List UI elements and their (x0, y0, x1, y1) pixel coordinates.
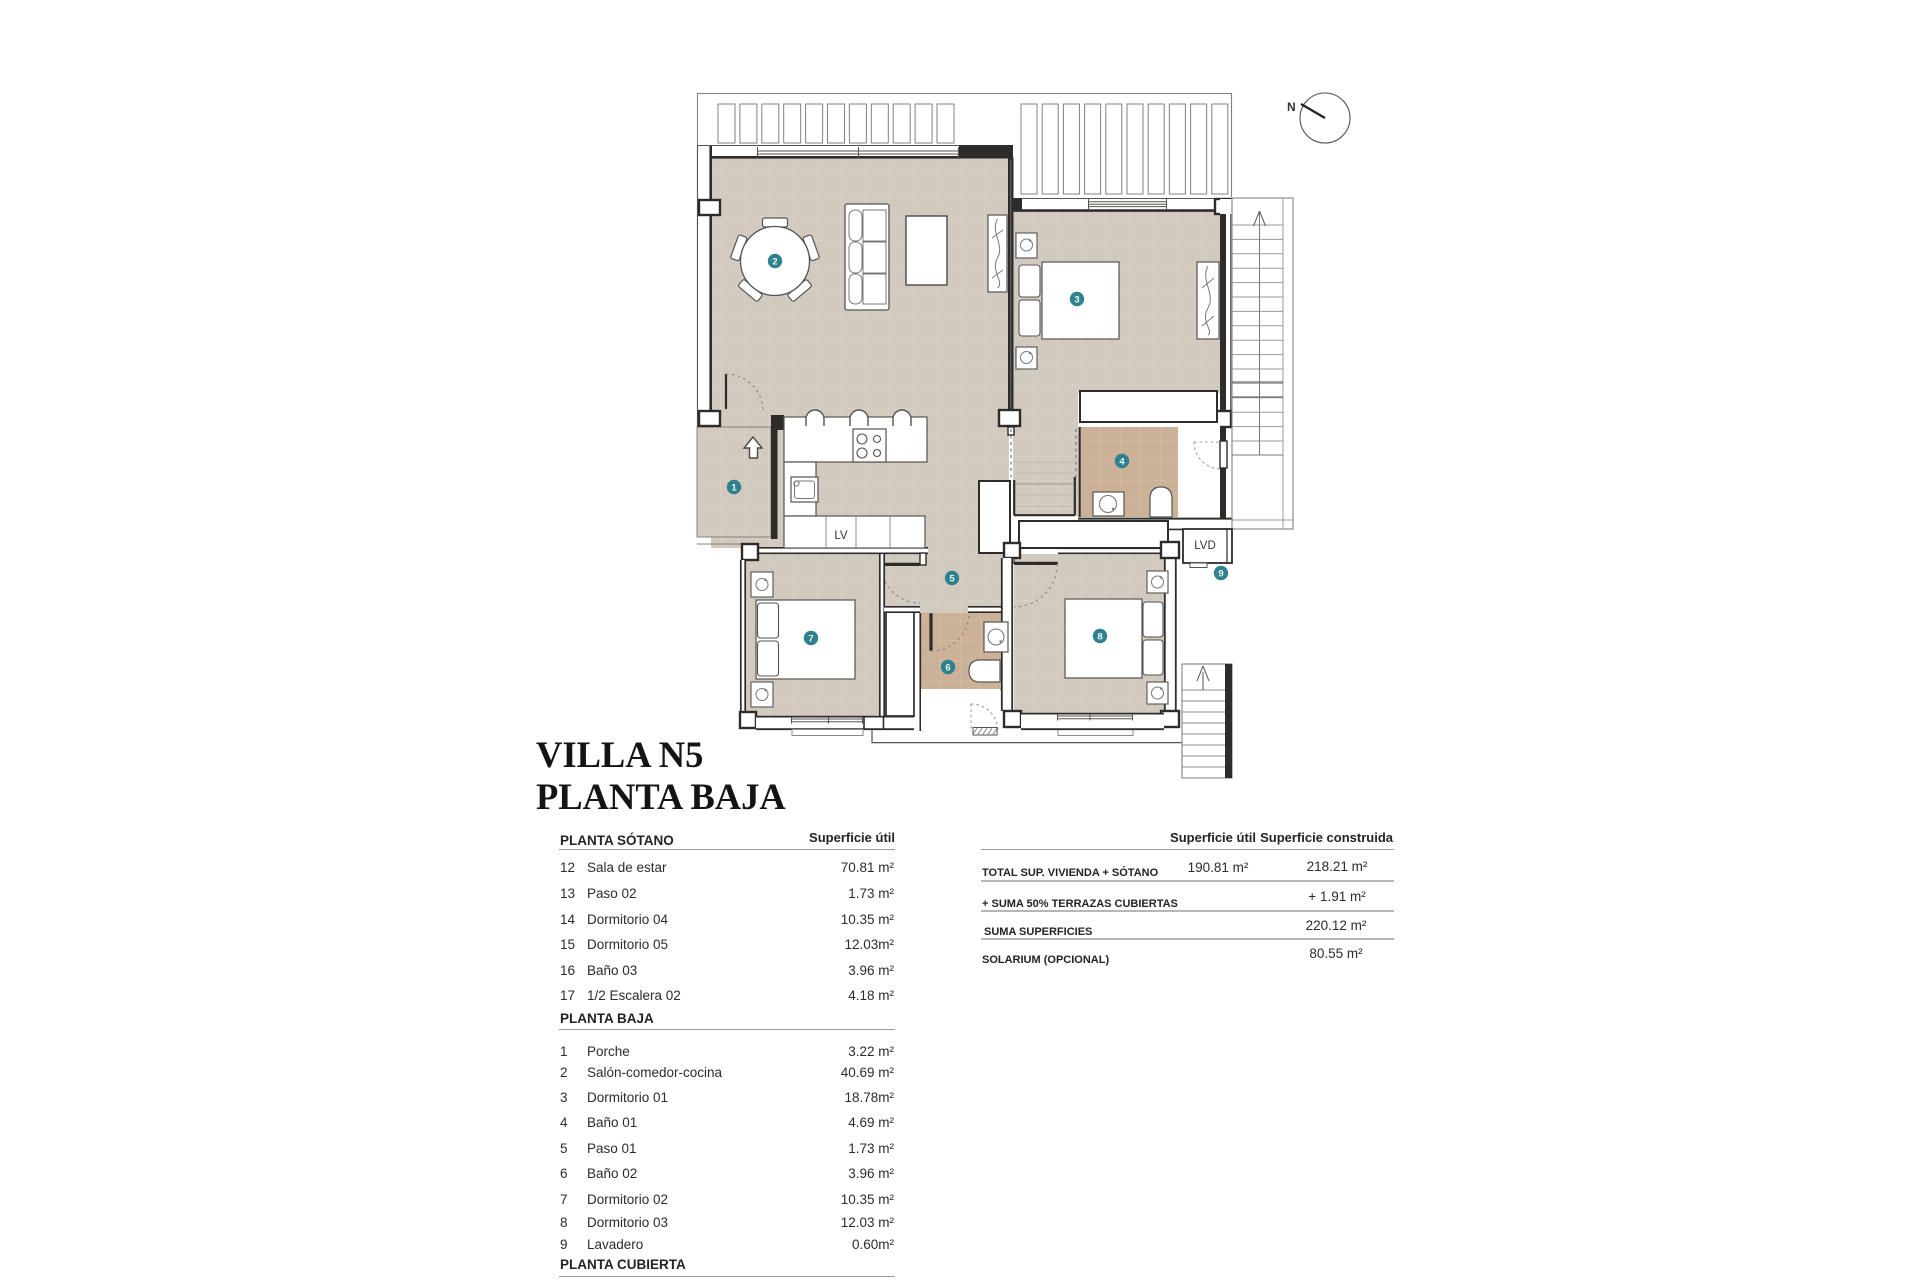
svg-text:2: 2 (772, 256, 777, 267)
svg-text:4.18 m²: 4.18 m² (848, 988, 894, 1003)
svg-text:1/2 Escalera 02: 1/2 Escalera 02 (587, 988, 681, 1003)
svg-text:LV: LV (834, 530, 848, 542)
svg-text:1: 1 (731, 482, 737, 493)
svg-text:8: 8 (560, 1215, 568, 1230)
svg-text:3: 3 (1074, 294, 1079, 305)
svg-text:220.12 m²: 220.12 m² (1306, 918, 1367, 933)
svg-text:Paso 02: Paso 02 (587, 886, 637, 901)
svg-text:TOTAL SUP. VIVIENDA + SÓTANO: TOTAL SUP. VIVIENDA + SÓTANO (982, 866, 1159, 879)
svg-text:PLANTA CUBIERTA: PLANTA CUBIERTA (560, 1257, 686, 1272)
svg-text:1.73 m²: 1.73 m² (848, 1141, 894, 1156)
svg-text:+ SUMA 50% TERRAZAS CUBIERTAS: + SUMA 50% TERRAZAS CUBIERTAS (982, 898, 1178, 910)
svg-text:Dormitorio 01: Dormitorio 01 (587, 1090, 668, 1105)
svg-text:Superficie construida: Superficie construida (1260, 830, 1394, 845)
svg-text:9: 9 (560, 1237, 568, 1252)
svg-text:7: 7 (560, 1192, 568, 1207)
svg-text:18.78m²: 18.78m² (844, 1090, 894, 1105)
svg-text:Paso 01: Paso 01 (587, 1141, 637, 1156)
svg-text:10.35 m²: 10.35 m² (841, 1192, 895, 1207)
svg-text:Salón-comedor-cocina: Salón-comedor-cocina (587, 1065, 723, 1080)
svg-text:12.03 m²: 12.03 m² (841, 1215, 895, 1230)
svg-text:Dormitorio 05: Dormitorio 05 (587, 937, 668, 952)
svg-text:16: 16 (560, 963, 575, 978)
svg-text:Baño 03: Baño 03 (587, 963, 637, 978)
svg-text:13: 13 (560, 886, 575, 901)
svg-text:Baño 01: Baño 01 (587, 1115, 637, 1130)
svg-text:40.69 m²: 40.69 m² (841, 1065, 895, 1080)
svg-text:3: 3 (560, 1090, 568, 1105)
svg-text:80.55 m²: 80.55 m² (1309, 946, 1363, 961)
svg-text:4: 4 (560, 1115, 568, 1130)
svg-text:4: 4 (1119, 456, 1125, 467)
svg-text:Baño 02: Baño 02 (587, 1166, 637, 1181)
svg-text:PLANTA BAJA: PLANTA BAJA (536, 776, 786, 817)
svg-text:14: 14 (560, 912, 576, 927)
svg-text:6: 6 (560, 1166, 568, 1181)
svg-text:2: 2 (560, 1065, 568, 1080)
svg-text:+ 1.91 m²: + 1.91 m² (1308, 889, 1366, 904)
svg-text:9: 9 (1218, 568, 1223, 579)
svg-text:0.60m²: 0.60m² (852, 1237, 895, 1252)
svg-text:Lavadero: Lavadero (587, 1237, 643, 1252)
svg-text:PLANTA SÓTANO: PLANTA SÓTANO (560, 833, 674, 848)
svg-text:3.96 m²: 3.96 m² (848, 963, 894, 978)
svg-text:1: 1 (560, 1044, 568, 1059)
svg-text:15: 15 (560, 937, 575, 952)
svg-text:LVD: LVD (1194, 540, 1216, 552)
svg-text:3.96 m²: 3.96 m² (848, 1166, 894, 1181)
svg-text:12: 12 (560, 860, 575, 875)
svg-text:8: 8 (1097, 631, 1102, 642)
svg-text:Superficie útil: Superficie útil (809, 830, 895, 845)
svg-text:190.81 m²: 190.81 m² (1188, 860, 1249, 875)
svg-text:Sala de estar: Sala de estar (587, 860, 667, 875)
svg-text:12.03m²: 12.03m² (844, 937, 894, 952)
svg-text:PLANTA BAJA: PLANTA BAJA (560, 1011, 654, 1026)
svg-text:10.35 m²: 10.35 m² (841, 912, 895, 927)
svg-text:Superficie útil: Superficie útil (1170, 830, 1256, 845)
svg-text:7: 7 (808, 633, 813, 644)
svg-text:218.21 m²: 218.21 m² (1307, 859, 1368, 874)
svg-text:70.81 m²: 70.81 m² (841, 860, 895, 875)
svg-text:3.22 m²: 3.22 m² (848, 1044, 894, 1059)
svg-text:4.69 m²: 4.69 m² (848, 1115, 894, 1130)
svg-text:Dormitorio 04: Dormitorio 04 (587, 912, 669, 927)
svg-text:Dormitorio 03: Dormitorio 03 (587, 1215, 668, 1230)
svg-text:1.73 m²: 1.73 m² (848, 886, 894, 901)
svg-text:N: N (1287, 100, 1296, 114)
svg-text:SUMA SUPERFICIES: SUMA SUPERFICIES (984, 926, 1092, 938)
svg-text:VILLA N5: VILLA N5 (536, 734, 703, 775)
svg-text:Dormitorio 02: Dormitorio 02 (587, 1192, 668, 1207)
svg-text:SOLARIUM (OPCIONAL): SOLARIUM (OPCIONAL) (982, 954, 1109, 966)
svg-text:6: 6 (945, 662, 950, 673)
svg-text:Porche: Porche (587, 1044, 630, 1059)
svg-text:5: 5 (560, 1141, 568, 1156)
svg-text:5: 5 (949, 573, 955, 584)
svg-text:17: 17 (560, 988, 575, 1003)
